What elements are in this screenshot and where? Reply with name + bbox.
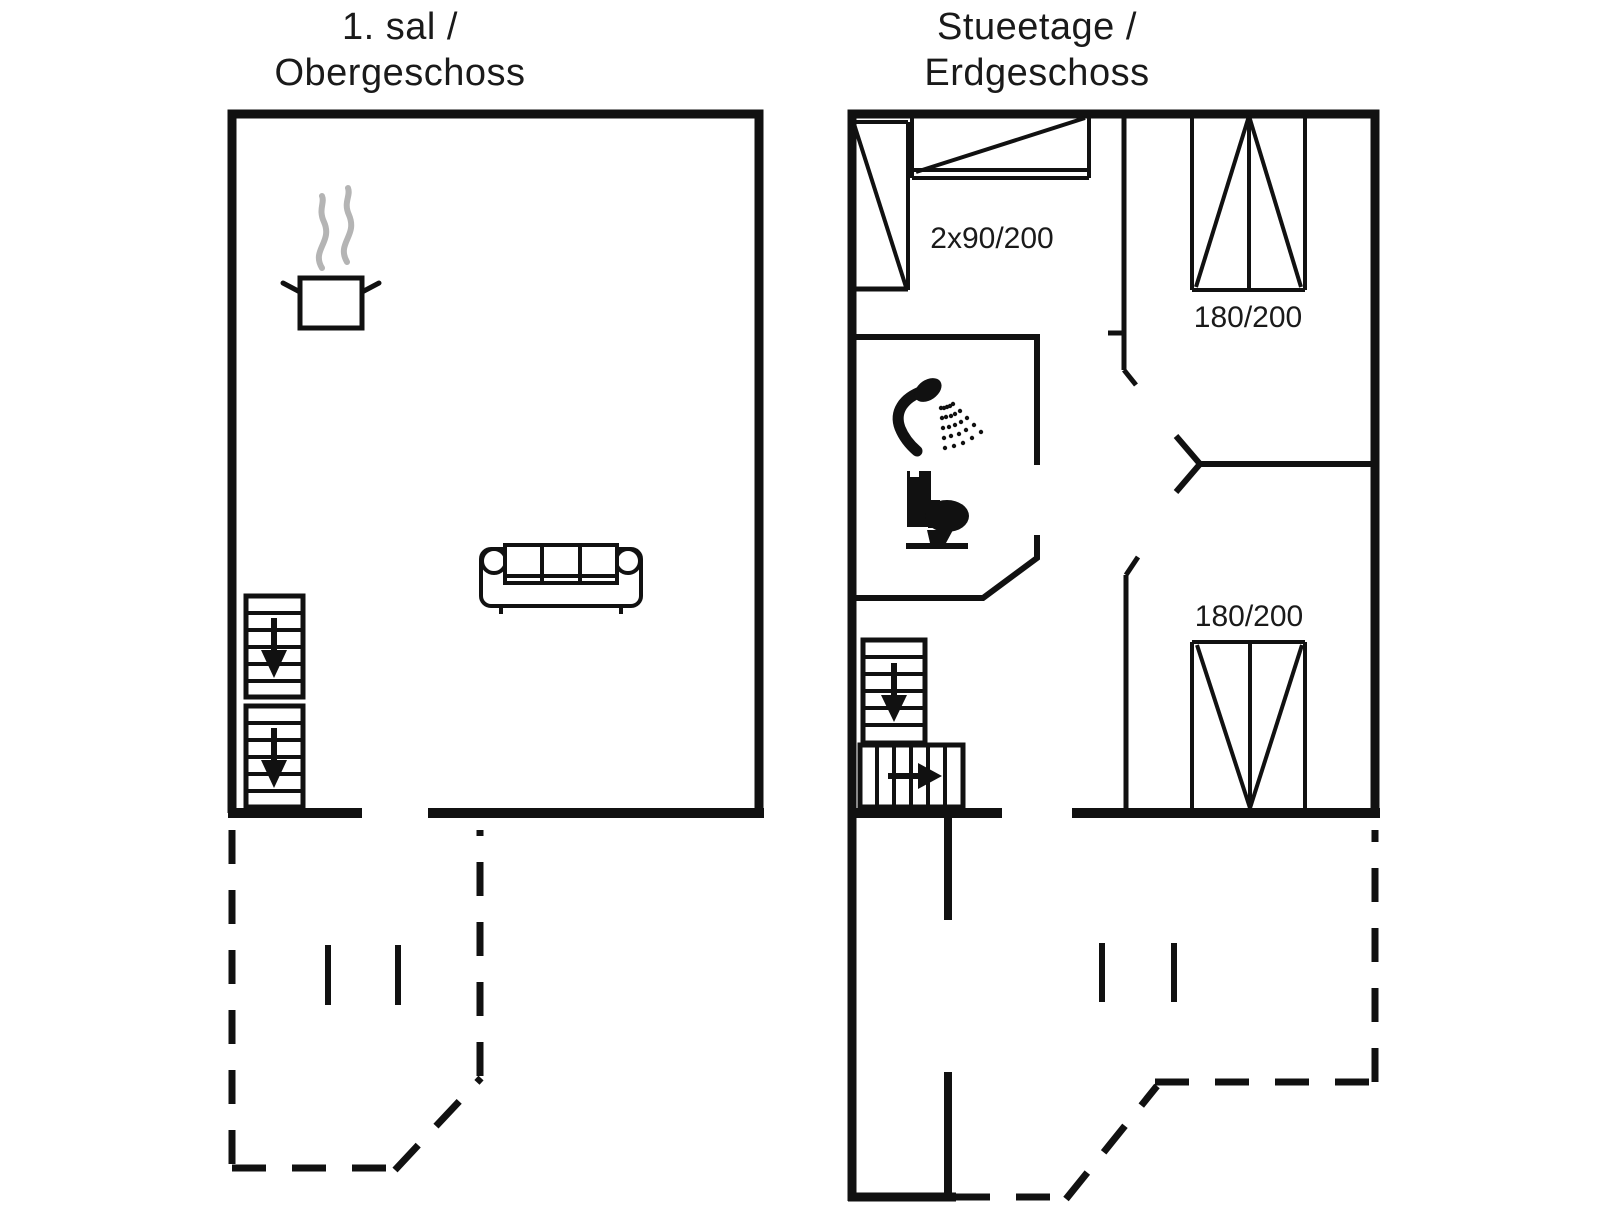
ground-floor-plan: 2x90/200 180/200 180/200 [848,114,1380,1201]
upper-staircase-bottom [246,706,303,807]
bedroom-divider-wall [1176,436,1379,492]
stairs-right-arrow-icon [888,763,942,789]
toilet-icon [906,471,969,549]
floor-plan-drawing: 2x90/200 180/200 180/200 [0,0,1606,1205]
cooking-pot-icon [283,278,379,328]
bedroom-door-wall-top [1108,114,1136,385]
upper-staircase-top [246,596,303,697]
twin-bed-horizontal [912,114,1089,178]
double-bed-bottom-size-label: 180/200 [1195,600,1303,633]
bathroom-walls [852,337,1040,598]
double-bed-bottom [1192,642,1305,813]
ground-terrace-dashed-outline [956,830,1375,1199]
double-bed-top [1192,114,1305,290]
ground-staircase-horizontal [860,745,963,807]
floor-plan-canvas: 1. sal / Obergeschoss Stueetage / Erdges… [0,0,1606,1205]
ground-floor-walls [848,114,1380,1201]
upper-floor-plan [228,114,764,1172]
upper-terrace-dashed-outline [232,830,481,1172]
sofa-icon [481,545,641,614]
ground-terrace-posts [1102,943,1174,1002]
bedroom-door-wall-bottom [1126,557,1138,813]
upper-terrace-posts [328,945,398,1005]
shower-spray-dots [939,402,983,450]
shower-icon [898,373,983,451]
ground-staircase-vertical [863,640,925,743]
twin-beds-size-label: 2x90/200 [930,222,1053,255]
steam-icon [319,188,351,268]
twin-bed-vertical [852,122,908,290]
double-bed-top-size-label: 180/200 [1194,301,1302,334]
upper-floor-walls [228,114,764,813]
